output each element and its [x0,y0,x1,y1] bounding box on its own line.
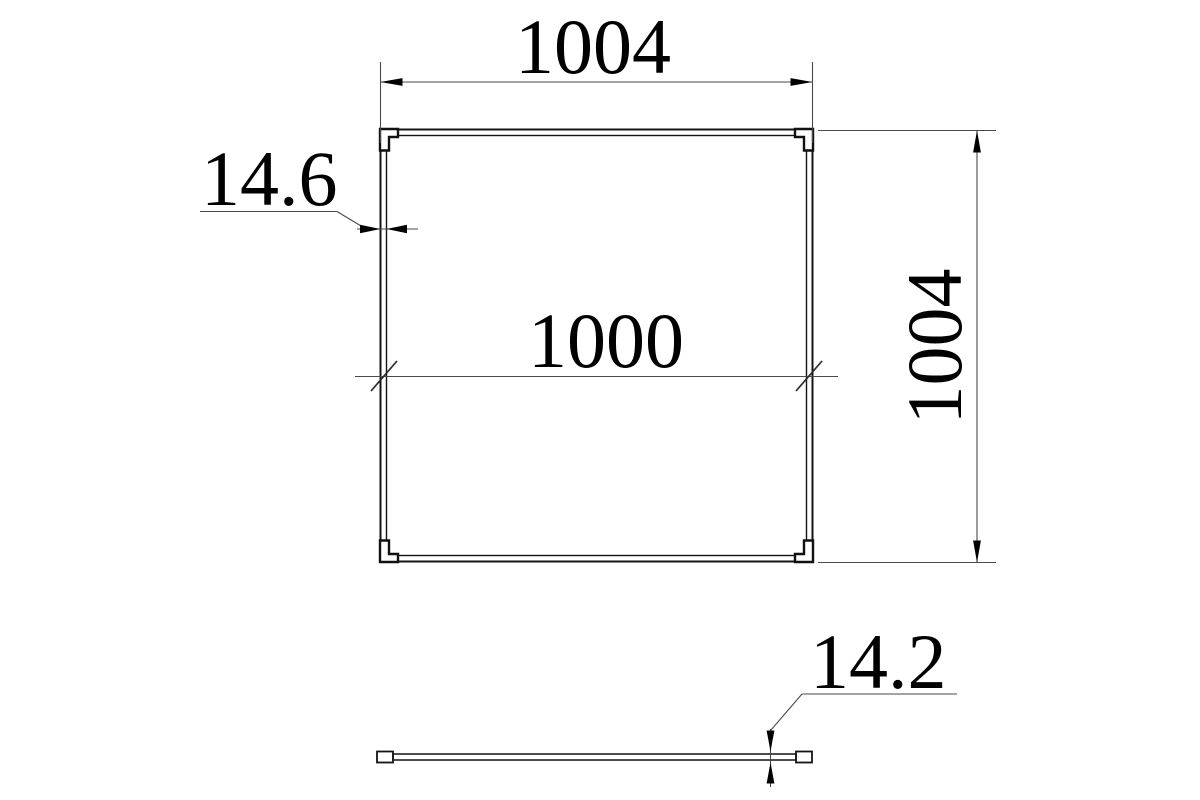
profile-end-cap-right [796,752,812,763]
arrowhead-right-icon [791,78,813,86]
arrowhead-left-icon [381,78,403,86]
dim-outer-width-value: 1004 [515,3,671,90]
arrowhead-down-icon [973,541,981,563]
dim-panel-thickness-value: 14.2 [810,618,947,705]
dim-inner-width-value: 1000 [528,297,684,384]
dim-outer-width: 1004 [381,3,813,143]
profile-body [393,754,796,760]
profile-end-cap-left [377,752,393,763]
dim-inner-width: 1000 [355,297,838,391]
dim-frame-thickness-value: 14.6 [201,135,338,222]
corner-key-top-left [380,129,398,151]
arrowhead-pointing-right-icon [360,225,381,234]
corner-key-top-right [795,129,813,151]
corner-key-bottom-right [795,541,813,563]
leader-diagonal [771,694,802,730]
technical-drawing-svg: 1004 14.6 1000 1004 [0,0,1200,800]
arrowhead-pointing-up-icon [767,763,775,784]
dim-outer-height-value: 1004 [891,269,978,425]
drawing-canvas: 1004 14.6 1000 1004 [0,0,1200,800]
arrowhead-up-icon [973,131,981,153]
corner-key-bottom-left [380,541,398,563]
side-view [377,752,812,763]
arrowhead-pointing-down-icon [767,731,775,752]
dim-outer-height: 1004 [818,131,996,563]
arrowhead-pointing-left-icon [387,225,408,234]
